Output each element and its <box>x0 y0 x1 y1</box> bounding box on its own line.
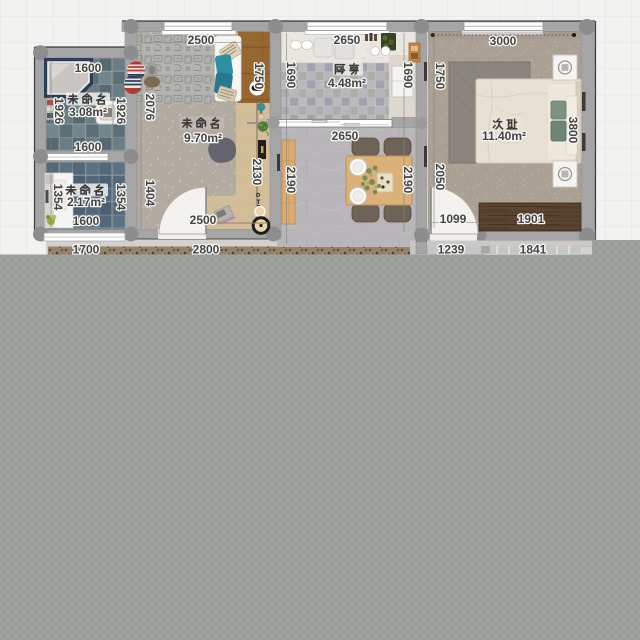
svg-text:2076: 2076 <box>143 94 157 121</box>
svg-text:1600: 1600 <box>75 140 102 154</box>
svg-text:1354: 1354 <box>114 184 128 211</box>
svg-text:2650: 2650 <box>332 129 359 143</box>
svg-text:1600: 1600 <box>75 61 102 75</box>
svg-text:3800: 3800 <box>566 117 580 144</box>
svg-text:2190: 2190 <box>401 167 415 194</box>
svg-text:1099: 1099 <box>440 212 467 226</box>
svg-text:1926: 1926 <box>52 98 66 125</box>
svg-text:2650: 2650 <box>334 33 361 47</box>
svg-text:1841: 1841 <box>520 243 547 257</box>
svg-text:2130: 2130 <box>250 159 264 186</box>
svg-text:1901: 1901 <box>518 212 545 226</box>
svg-text:2.17m²: 2.17m² <box>67 195 105 209</box>
svg-text:1600: 1600 <box>73 214 100 228</box>
svg-text:2800: 2800 <box>193 243 220 257</box>
svg-text:1926: 1926 <box>114 98 128 125</box>
svg-text:2500: 2500 <box>190 213 217 227</box>
svg-text:3000: 3000 <box>490 34 517 48</box>
svg-text:1239: 1239 <box>438 243 465 257</box>
svg-text:1700: 1700 <box>73 243 100 257</box>
svg-text:1690: 1690 <box>401 62 415 89</box>
svg-text:2190: 2190 <box>284 167 298 194</box>
svg-text:2050: 2050 <box>433 164 447 191</box>
svg-text:1404: 1404 <box>143 180 157 207</box>
svg-text:4.48m²: 4.48m² <box>328 76 366 90</box>
svg-text:9.70m²: 9.70m² <box>184 131 222 145</box>
svg-text:1750: 1750 <box>252 63 266 90</box>
svg-text:3.08m²: 3.08m² <box>69 105 107 119</box>
svg-text:11.40m²: 11.40m² <box>482 129 526 143</box>
svg-text:1354: 1354 <box>51 184 65 211</box>
svg-text:1690: 1690 <box>284 62 298 89</box>
svg-text:1750: 1750 <box>433 63 447 90</box>
svg-text:2500: 2500 <box>188 33 215 47</box>
